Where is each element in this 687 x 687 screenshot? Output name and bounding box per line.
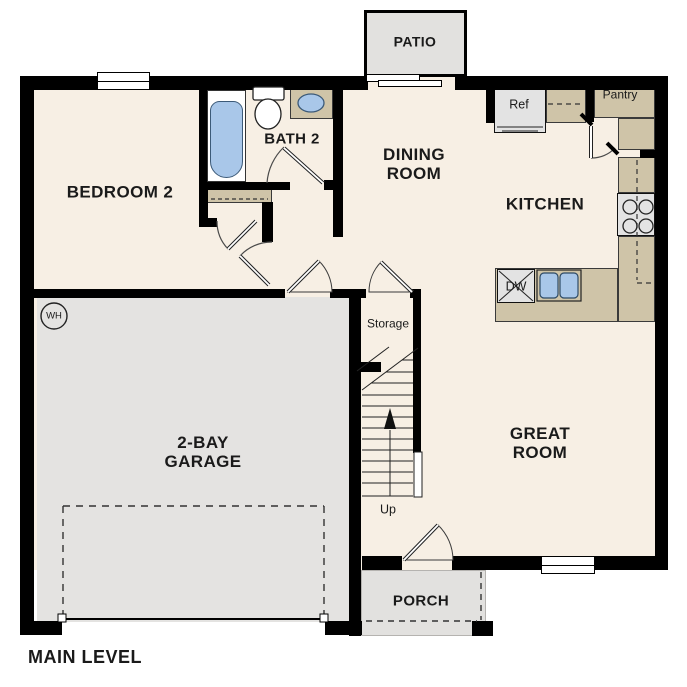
wall-left: [20, 76, 34, 635]
room-label-bath2: BATH 2: [264, 130, 319, 149]
wall-hall-garage: [25, 289, 285, 298]
wall-garage-right: [349, 289, 361, 636]
floor-plan: BEDROOM 2 BATH 2 DINING ROOM KITCHEN GRE…: [0, 0, 687, 687]
wall-bath-bottom: [270, 182, 290, 190]
wall-ref-left-stub: [486, 85, 495, 123]
bath-vanity-counter: [290, 88, 333, 119]
bathtub-icon: [210, 101, 243, 178]
wall-under-stair: [358, 362, 381, 372]
fixture-label-ref: Ref: [509, 96, 528, 115]
wall-greatroom-bottom-3: [595, 556, 668, 570]
wall-closet-right: [262, 202, 273, 242]
area-label-pantry: Pantry: [603, 86, 638, 105]
room-label-kitchen: KITCHEN: [506, 195, 584, 214]
area-label-storage: Storage: [367, 315, 409, 334]
plan-title: MAIN LEVEL: [28, 648, 142, 667]
pantry-area-side: [618, 118, 655, 150]
room-label-dining: DINING ROOM: [383, 145, 445, 183]
area-label-porch: PORCH: [393, 592, 449, 611]
closet-shelf: [207, 188, 272, 203]
wall-right: [655, 76, 668, 570]
kitchen-counter-right-lower: [618, 236, 655, 322]
wall-bedroom-bath: [199, 87, 207, 190]
room-label-garage: 2-BAY GARAGE: [164, 433, 241, 471]
wall-pantry-tick: [640, 150, 655, 158]
wall-greatroom-bottom-1: [362, 556, 402, 570]
wall-porch-stub: [472, 621, 493, 636]
room-label-great: GREAT ROOM: [510, 424, 570, 462]
wall-tubroom-bottom: [199, 182, 278, 190]
wall-garage-bottom-left: [25, 621, 62, 635]
wall-closet-stub-left: [203, 218, 217, 227]
bedroom-window: [97, 72, 150, 90]
fixture-label-wh: WH: [46, 307, 62, 326]
stairs-up-label: Up: [380, 501, 396, 520]
stove-box: [617, 193, 655, 236]
wall-stair-right: [413, 289, 421, 453]
room-label-bedroom2: BEDROOM 2: [67, 183, 174, 202]
area-label-patio: PATIO: [394, 33, 437, 52]
wall-greatroom-bottom-2: [452, 556, 541, 570]
wall-dining-hall: [333, 87, 343, 237]
kitchen-counter-top: [546, 88, 586, 123]
fixture-label-dw: DW: [506, 278, 527, 297]
patio-slider-panel-2: [378, 80, 442, 87]
kitchen-counter-right-upper: [618, 157, 655, 193]
wall-pantry-left-stub: [586, 85, 594, 122]
greatroom-window: [541, 556, 595, 574]
wall-top-left: [20, 76, 368, 90]
